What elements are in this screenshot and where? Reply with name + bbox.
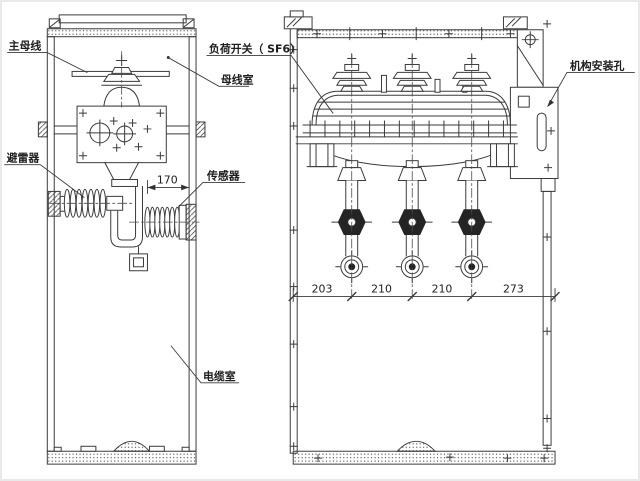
front-left-wall xyxy=(290,16,297,453)
switchgear-drawing: 主母线 母线室 负荷开关（ SF6） 避雷器 传感器 电缆室 机构安装孔 170… xyxy=(2,2,638,479)
wall-tab-left xyxy=(38,122,47,137)
left-wall xyxy=(47,37,54,452)
front-base xyxy=(293,441,555,464)
top-left-corner-bracket xyxy=(284,11,312,29)
label-arrester: 避雷器 xyxy=(7,151,41,165)
dim-203: 203 xyxy=(312,283,333,296)
right-view-front-section xyxy=(284,11,559,464)
tank-bracket-left xyxy=(307,144,337,167)
dim-210b: 210 xyxy=(432,283,453,296)
front-right-wall xyxy=(543,191,551,445)
cable-connector-box xyxy=(130,254,148,271)
tank-bracket-right xyxy=(488,144,518,167)
label-busbar-room: 母线室 xyxy=(221,72,254,86)
mechanism-box xyxy=(77,106,166,163)
label-cable-room: 电缆室 xyxy=(203,369,236,383)
top-rail xyxy=(47,29,196,37)
dim-170: 170 xyxy=(157,173,178,186)
label-mechanism-plate: 机构安装孔 xyxy=(570,58,625,72)
funnel xyxy=(105,163,139,187)
wall-tab-right xyxy=(196,122,205,137)
cad-canvas: 主母线 母线室 负荷开关（ SF6） 避雷器 传感器 电缆室 机构安装孔 170… xyxy=(0,0,640,481)
dim-273: 273 xyxy=(503,283,524,296)
dim-210a: 210 xyxy=(371,283,392,296)
label-sensor: 传感器 xyxy=(206,169,241,183)
roof-clamp-left xyxy=(49,19,60,28)
label-load-switch: 负荷开关（ SF6） xyxy=(209,42,301,56)
roof-plate xyxy=(59,15,186,23)
front-top-rail xyxy=(297,30,518,38)
top-right-channel xyxy=(503,17,550,87)
right-wall xyxy=(189,37,196,452)
leader-mechanism-plate xyxy=(549,72,634,104)
left-base xyxy=(47,441,196,464)
label-main-busbar: 主母线 xyxy=(9,39,42,53)
leader-sensor xyxy=(178,182,244,207)
